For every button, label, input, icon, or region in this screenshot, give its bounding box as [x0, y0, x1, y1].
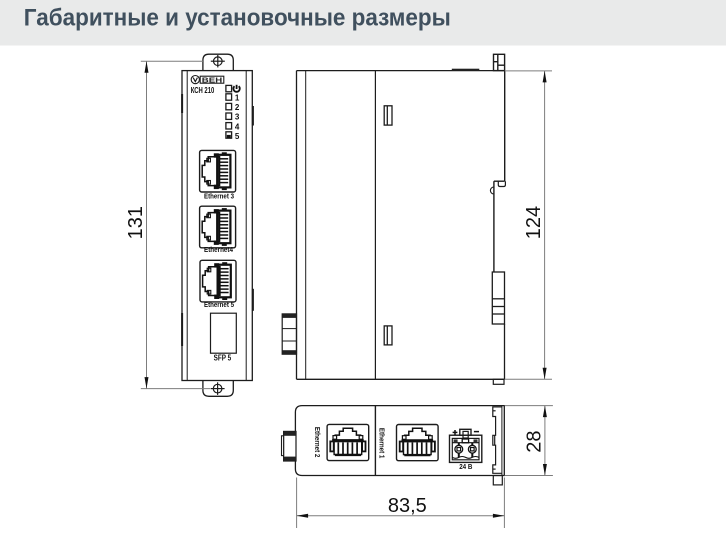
svg-text:Ethernet 3: Ethernet 3 — [204, 191, 234, 200]
svg-text:ВЕН: ВЕН — [202, 75, 222, 84]
svg-text:5: 5 — [235, 132, 240, 141]
svg-text:24 В: 24 В — [459, 462, 473, 471]
svg-text:124: 124 — [523, 206, 545, 239]
svg-text:3: 3 — [235, 113, 240, 122]
svg-text:28: 28 — [523, 430, 545, 452]
svg-text:1: 1 — [235, 94, 240, 103]
svg-text:Ethernet 5: Ethernet 5 — [204, 300, 234, 309]
svg-text:131: 131 — [125, 206, 147, 239]
svg-text:Габаритные и установочные разм: Габаритные и установочные размеры — [24, 4, 451, 31]
svg-text:Ethernet 2: Ethernet 2 — [313, 427, 322, 458]
svg-text:83,5: 83,5 — [388, 495, 427, 517]
svg-text:Ethernet 1: Ethernet 1 — [377, 428, 386, 459]
svg-text:Ethernet4: Ethernet4 — [204, 245, 234, 254]
svg-text:2: 2 — [235, 103, 240, 112]
svg-text:SFP 5: SFP 5 — [214, 354, 232, 363]
svg-text:КСН 210: КСН 210 — [191, 86, 215, 95]
svg-text:4: 4 — [235, 122, 240, 131]
